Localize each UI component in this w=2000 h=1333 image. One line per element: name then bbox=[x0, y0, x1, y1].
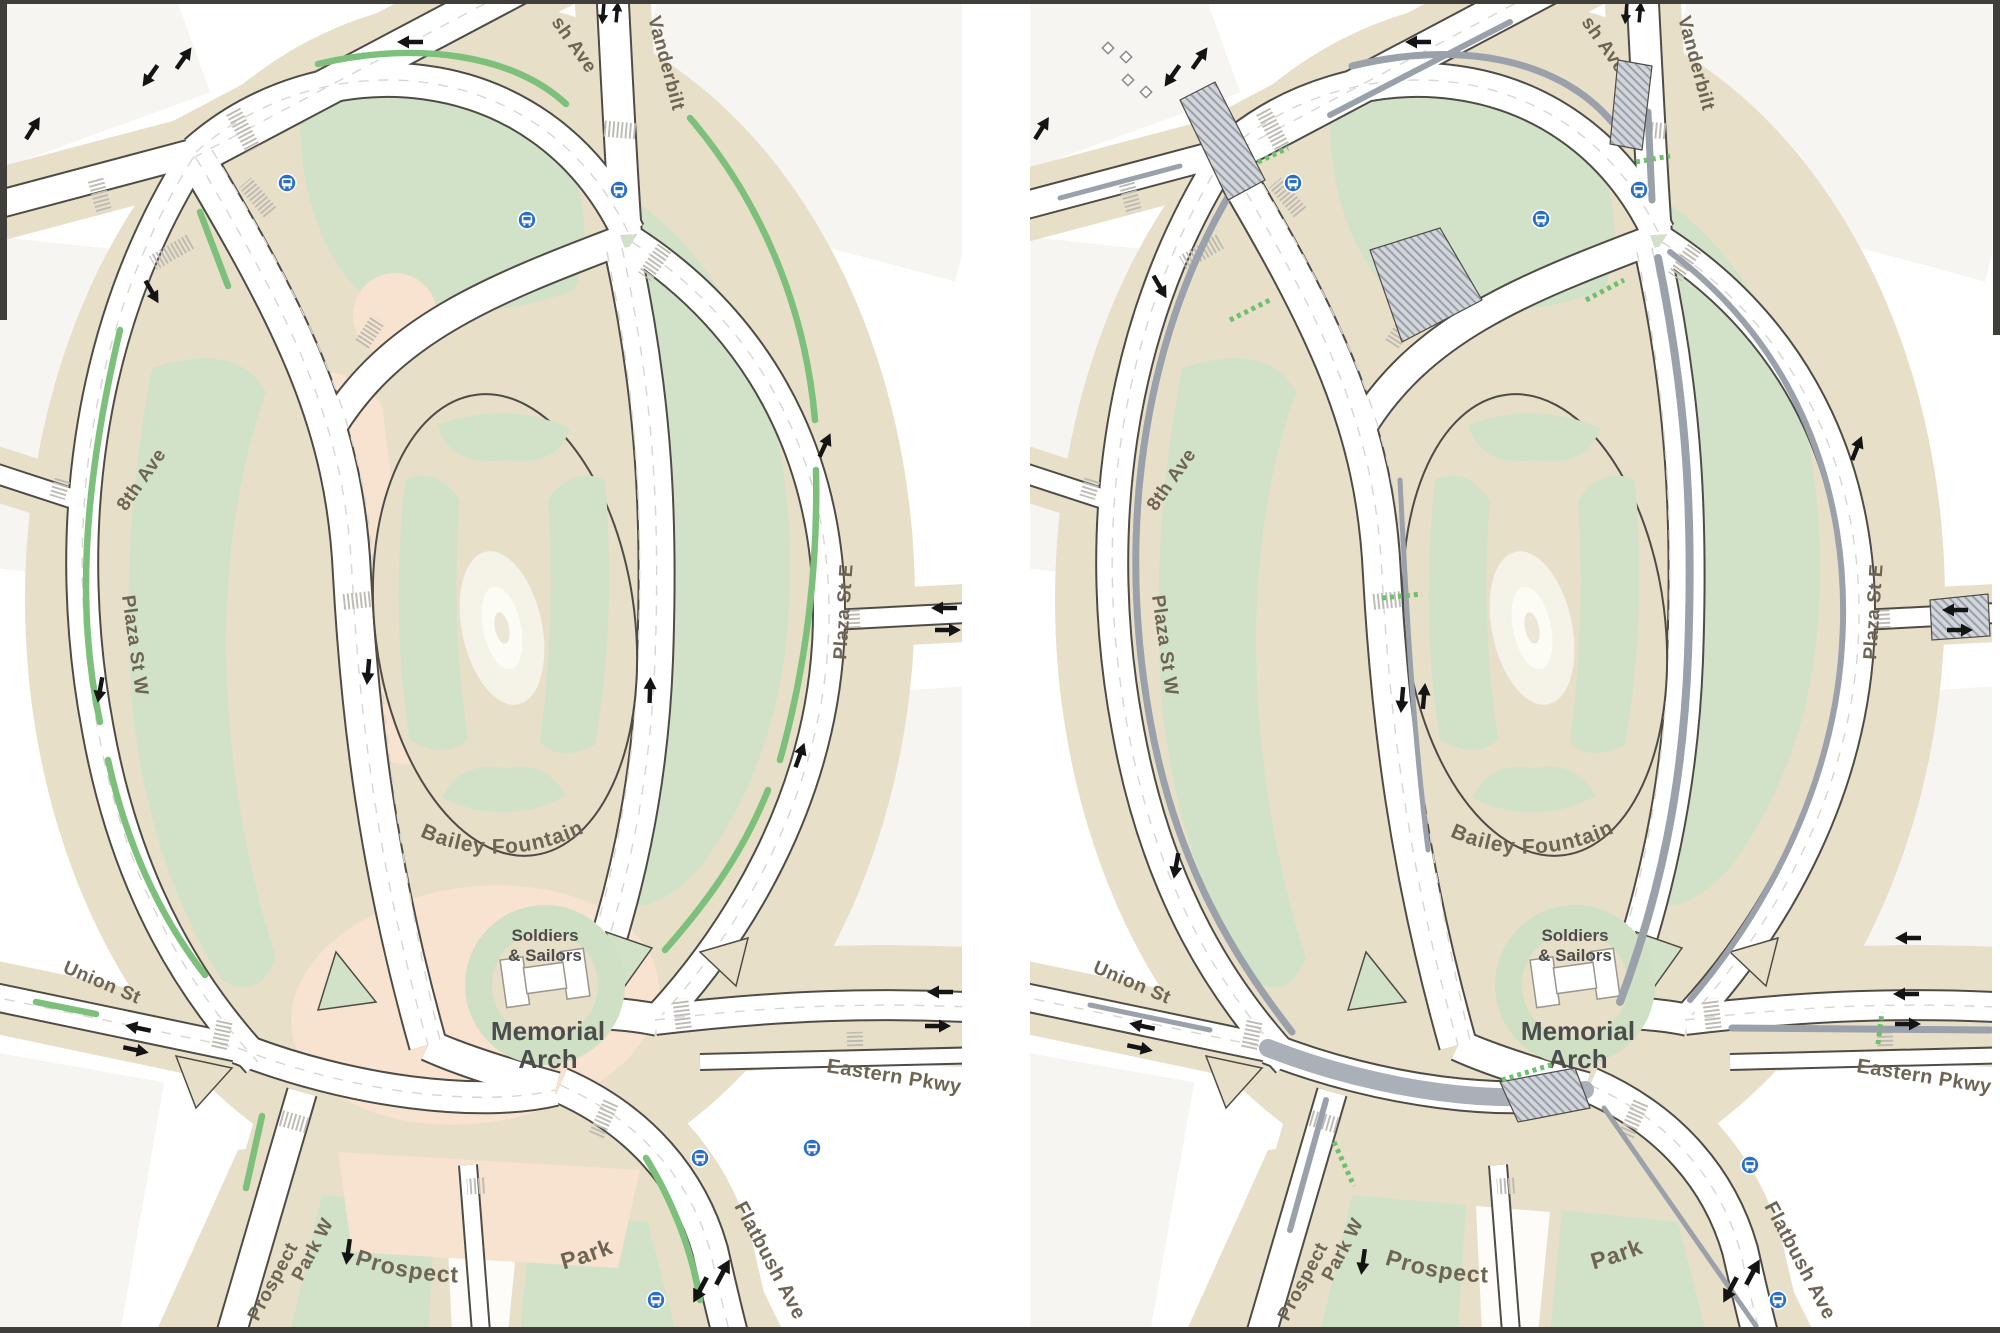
image-border-bottom bbox=[0, 1327, 2000, 1333]
bus-stop-icon bbox=[278, 174, 296, 192]
bus-stop-icon bbox=[803, 1139, 821, 1157]
image-border-left bbox=[0, 0, 7, 320]
bus-stop-icon bbox=[691, 1149, 709, 1167]
grand-army-plaza-maps: sh Ave 8th Ave Vanderbilt Plaza St W Pla… bbox=[0, 0, 2000, 1333]
bus-stop-icon bbox=[518, 211, 536, 229]
bus-stop-icon bbox=[647, 1291, 665, 1309]
image-border-top bbox=[0, 0, 2000, 4]
bus-stop-icon bbox=[1769, 1291, 1787, 1309]
left-map-panel bbox=[0, 0, 1039, 1333]
bus-stop-icon bbox=[610, 181, 628, 199]
image-border-right bbox=[1993, 0, 2000, 335]
bus-stop-icon bbox=[1284, 174, 1302, 192]
bus-stop-icon bbox=[1630, 181, 1648, 199]
map-comparison-figure: sh Ave 8th Ave Vanderbilt Plaza St W Pla… bbox=[0, 0, 2000, 1333]
bus-stop-icon bbox=[1741, 1156, 1759, 1174]
bus-stop-icon bbox=[1532, 210, 1550, 228]
right-map-panel bbox=[916, 0, 2000, 1333]
